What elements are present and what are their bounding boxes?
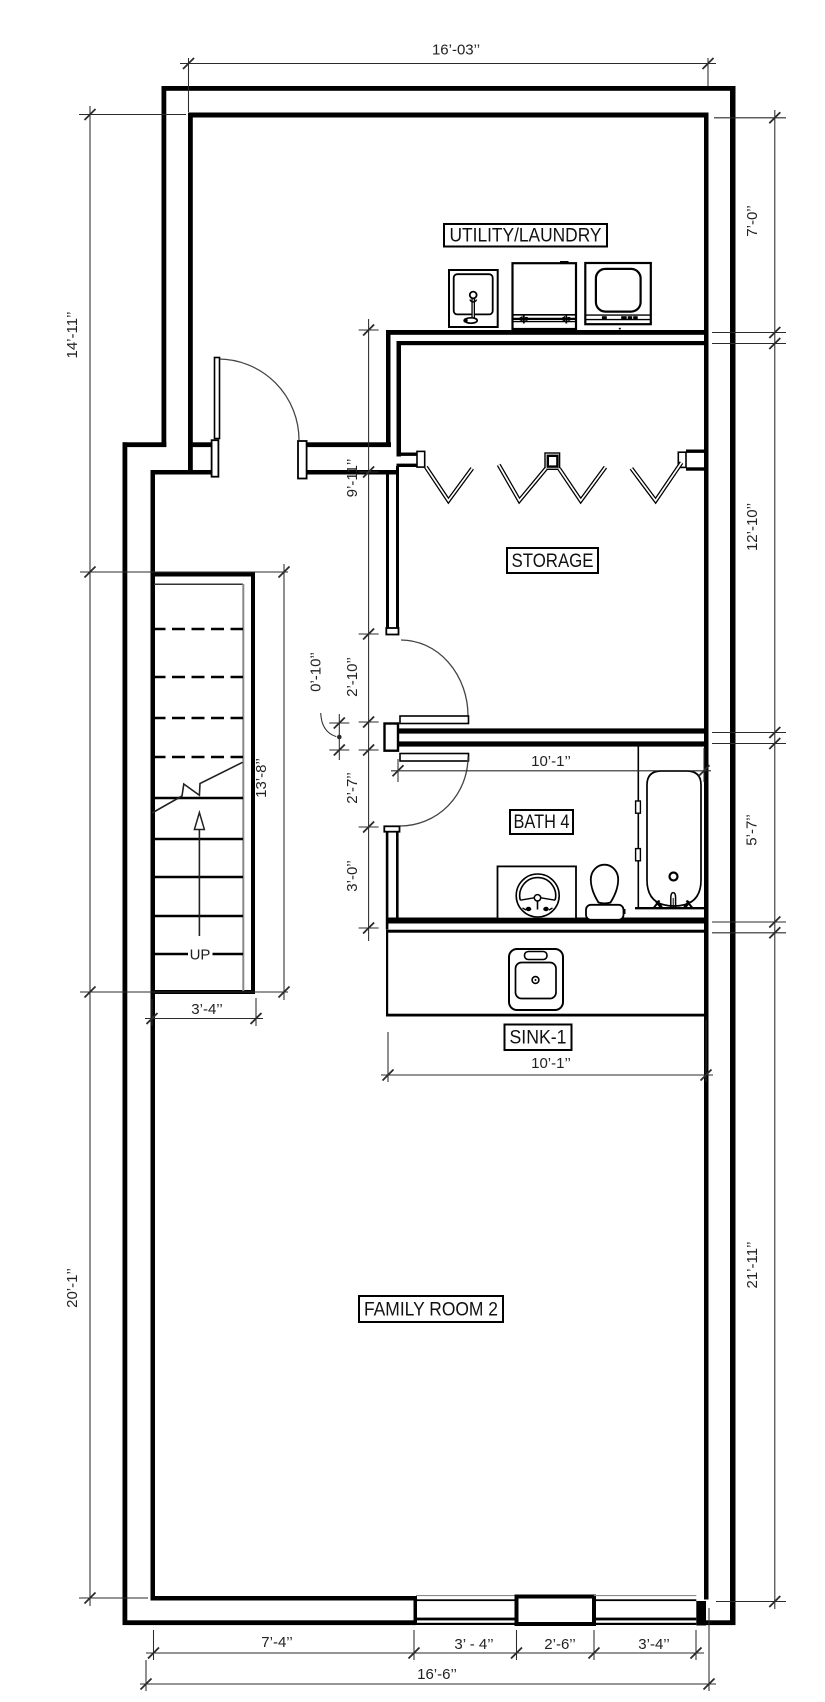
- svg-text:FAMILY ROOM 2: FAMILY ROOM 2: [364, 1300, 498, 1321]
- svg-text:7’-0’’: 7’-0’’: [744, 205, 761, 236]
- svg-text:2’-7’’: 2’-7’’: [344, 772, 361, 803]
- svg-text:SINK-1: SINK-1: [510, 1028, 567, 1049]
- svg-text:3’-4’’: 3’-4’’: [191, 1001, 222, 1018]
- svg-text:16’-03’’: 16’-03’’: [432, 42, 480, 59]
- svg-text:16’-6’’: 16’-6’’: [417, 1666, 457, 1683]
- svg-text:0’-10’’: 0’-10’’: [308, 652, 325, 692]
- svg-text:10’-1’’: 10’-1’’: [531, 753, 571, 770]
- svg-text:7’-4’’: 7’-4’’: [261, 1634, 292, 1651]
- svg-text:UP: UP: [190, 947, 211, 964]
- svg-text:3’-0’’: 3’-0’’: [344, 860, 361, 891]
- svg-text:13’-8’’: 13’-8’’: [253, 758, 270, 798]
- svg-text:14’-11’’: 14’-11’’: [64, 312, 81, 359]
- svg-text:UTILITY/LAUNDRY: UTILITY/LAUNDRY: [450, 226, 602, 247]
- svg-text:BATH 4: BATH 4: [514, 812, 570, 833]
- svg-text:9’-11’’: 9’-11’’: [344, 459, 361, 498]
- svg-text:5’-7’’: 5’-7’’: [744, 814, 761, 845]
- svg-text:21’-11’’: 21’-11’’: [744, 1242, 761, 1289]
- svg-text:12’-10’’: 12’-10’’: [744, 503, 761, 551]
- svg-text:3’ - 4’’: 3’ - 4’’: [454, 1636, 493, 1653]
- svg-text:2’-6’’: 2’-6’’: [544, 1636, 575, 1653]
- svg-text:20’-1’’: 20’-1’’: [64, 1268, 81, 1308]
- svg-text:3’-4’’: 3’-4’’: [638, 1636, 669, 1653]
- svg-text:2’-10’’: 2’-10’’: [344, 657, 361, 697]
- svg-text:10’-1’’: 10’-1’’: [531, 1055, 571, 1072]
- svg-text:STORAGE: STORAGE: [512, 551, 594, 572]
